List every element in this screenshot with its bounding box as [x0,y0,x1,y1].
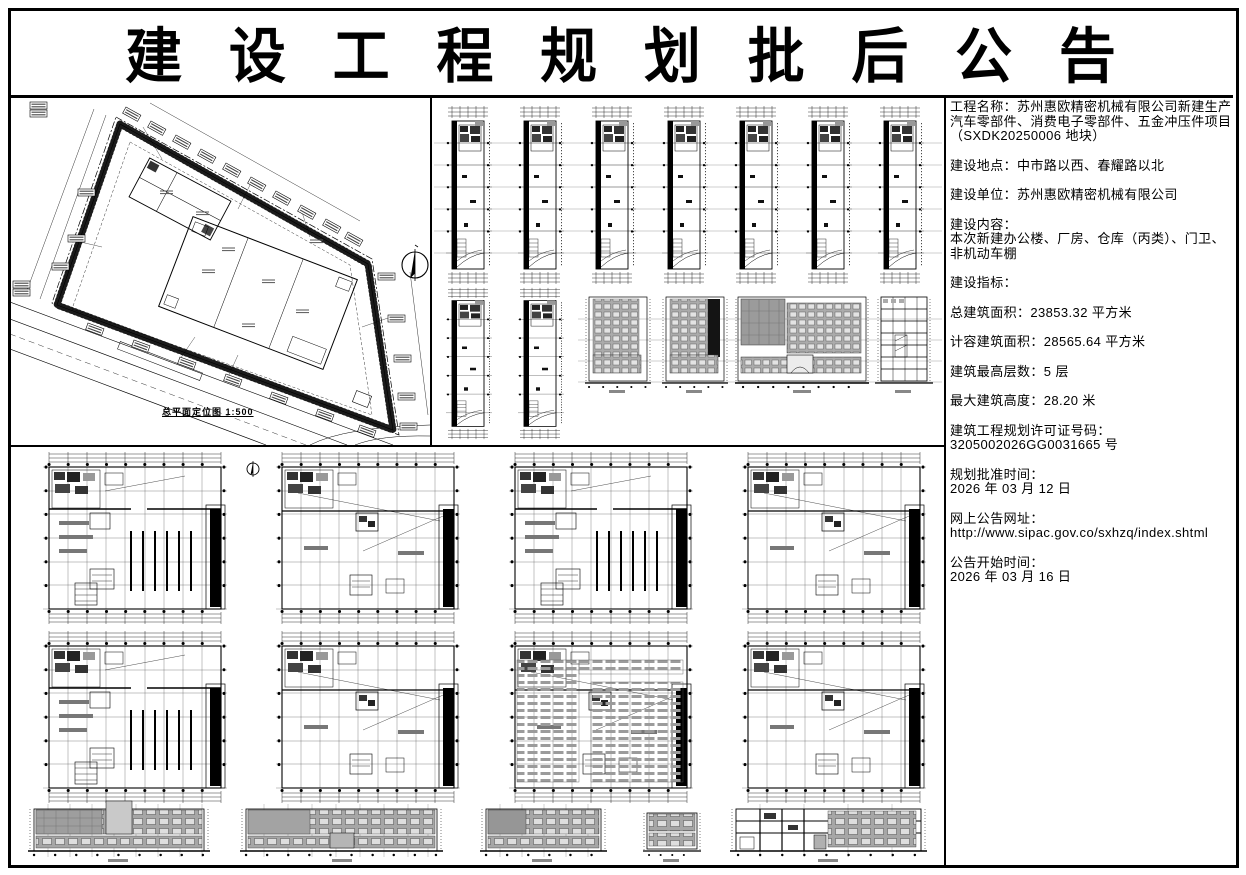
project-name: 工程名称：苏州惠欧精密机械有限公司新建生产汽车零部件、消费电子零部件、五金冲压件… [950,100,1234,144]
coordinate-callouts [13,102,417,437]
url-value: http://www.sipac.gov.co/sxhzq/index.shtm… [950,526,1234,541]
content-value: 本次新建办公楼、厂房、仓库（丙类）、门卫、非机动车棚 [950,232,1234,261]
factory-elevation-1 [28,801,210,862]
site-plan-caption: 总平面定位图 1:500 [162,405,254,418]
announcement-poster: 建设工程规划批后公告 [0,0,1246,875]
total-area: 总建筑面积：23853.32 平方米 [950,306,1234,321]
roof-hatch-overlay [517,660,683,782]
permit-label: 建筑工程规划许可证号码： [950,424,1234,439]
site-plan-panel: 总平面定位图 1:500 [10,97,430,445]
site-plan-drawing [10,97,430,445]
permit-value: 3205002026GG0031665 号 [950,438,1234,453]
office-plans-panel [432,97,944,445]
factory-plans-panel [10,447,944,863]
max-floors: 建筑最高层数：5 层 [950,365,1234,380]
factory-elevation-2 [240,804,443,862]
max-height: 最大建筑高度：28.20 米 [950,394,1234,409]
announcement-start: 公告开始时间： 2026 年 03 月 16 日 [950,556,1234,585]
info-panel: 工程名称：苏州惠欧精密机械有限公司新建生产汽车零部件、消费电子零部件、五金冲压件… [950,100,1234,860]
url-label: 网上公告网址： [950,512,1234,527]
office-plans-drawing [432,97,944,445]
indicators-label: 建设指标： [950,276,1234,291]
divider-vertical-right [944,95,946,865]
factory-plans-drawing [10,447,944,863]
permit-number: 建筑工程规划许可证号码： 3205002026GG0031665 号 [950,424,1234,453]
office-section [875,297,933,393]
project-location: 建设地点：中市路以西、春耀路以北 [950,159,1234,174]
factory-elevation-3 [480,804,607,862]
north-arrow-small-icon [247,461,259,477]
office-building-footprint [129,158,231,240]
capacity-area: 计容建筑面积：28565.64 平方米 [950,335,1234,350]
office-elevation-2 [662,297,728,393]
start-date: 2026 年 03 月 16 日 [950,570,1234,585]
north-arrow-icon [402,245,428,281]
project-builder: 建设单位：苏州惠欧精密机械有限公司 [950,188,1234,203]
approval-date: 2026 年 03 月 12 日 [950,482,1234,497]
factory-section [730,804,927,862]
page-title: 建设工程规划批后公告 [125,8,1162,94]
start-label: 公告开始时间： [950,556,1234,571]
office-elevation-3 [735,297,869,393]
guardhouse-elevation [643,813,701,862]
office-elevation-1 [585,297,651,393]
title-band: 建设工程规划批后公告 [8,8,1233,98]
approval-label: 规划批准时间： [950,468,1234,483]
content-label: 建设内容： [950,218,1234,233]
approval-time: 规划批准时间： 2026 年 03 月 12 日 [950,468,1234,497]
project-content: 建设内容： 本次新建办公楼、厂房、仓库（丙类）、门卫、非机动车棚 [950,218,1234,262]
announcement-url: 网上公告网址： http://www.sipac.gov.co/sxhzq/in… [950,512,1234,541]
